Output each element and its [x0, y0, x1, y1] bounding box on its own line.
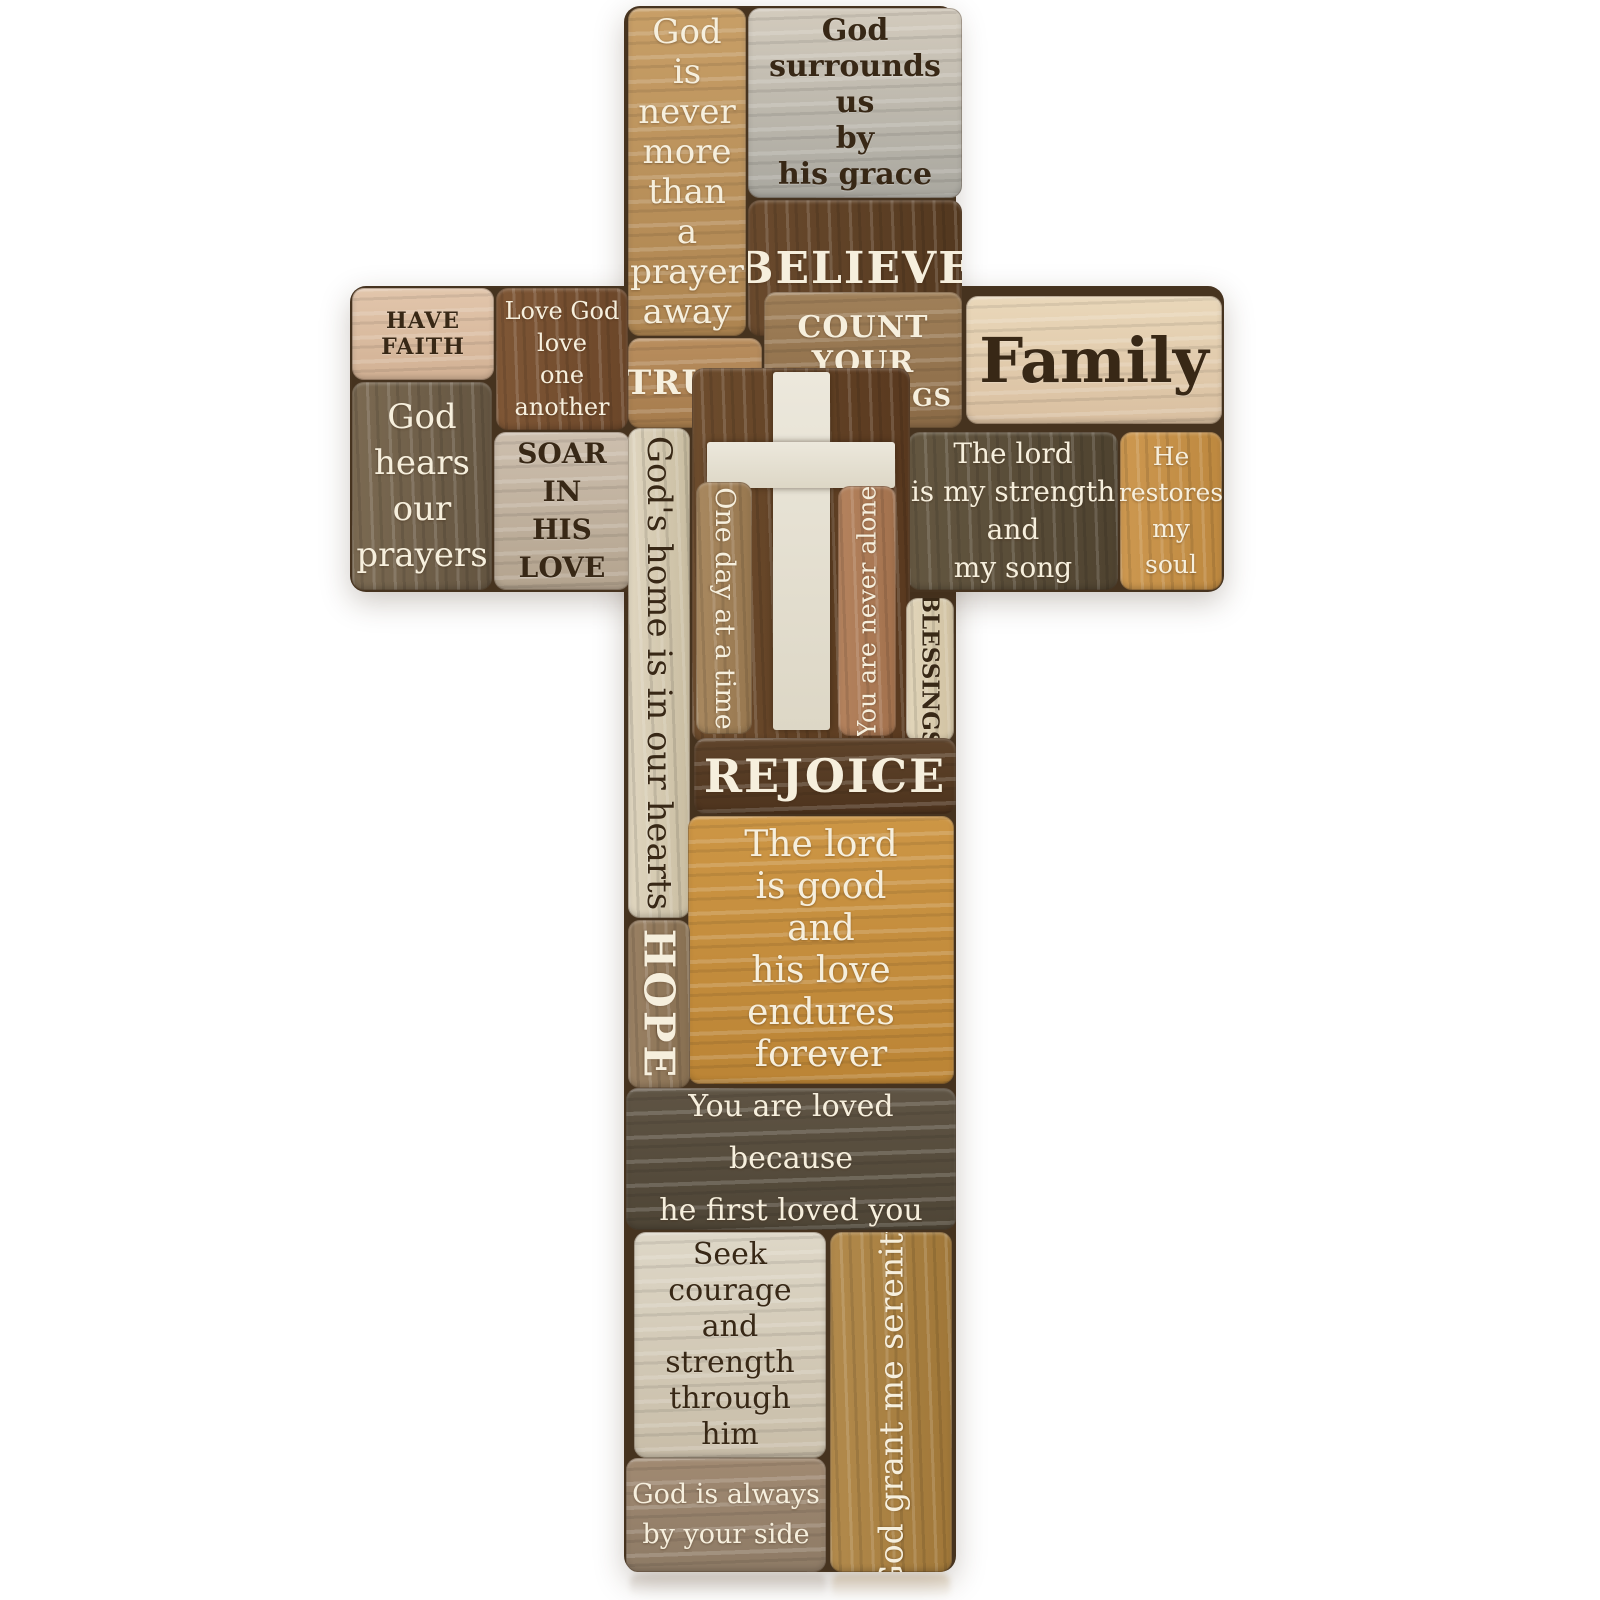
plank-never-alone: You are never alone	[838, 486, 896, 736]
plank-have-faith: HAVE FAITH	[352, 288, 494, 380]
plank-rejoice: REJOICE	[694, 738, 956, 814]
plank-god-surrounds: God surrounds us by his grace	[748, 8, 962, 198]
plank-soar: SOAR IN HIS LOVE	[494, 432, 630, 590]
plank-always-side-text: God is always by your side	[632, 1475, 820, 1555]
plank-love-god-text: Love God love one another	[496, 295, 628, 423]
plank-lord-strength: The lord is my strength and my song	[908, 432, 1118, 590]
plank-lord-good: The lord is good and his love endures fo…	[688, 816, 954, 1084]
cross-cutout-icon	[773, 372, 830, 730]
plank-hope-text: HOPE	[635, 928, 684, 1080]
product-photo-wooden-cross: God is never more than a prayer away God…	[0, 0, 1600, 1600]
plank-one-day: One day at a time	[696, 482, 752, 734]
plank-family-text: Family	[979, 324, 1209, 397]
plank-blessings-vertical: BLESSINGS	[906, 598, 954, 742]
plank-always-side: God is always by your side	[626, 1458, 826, 1572]
plank-blessings-vertical-text: BLESSINGS	[917, 598, 944, 742]
plank-lord-good-text: The lord is good and his love endures fo…	[744, 824, 897, 1076]
plank-he-restores: He restores my soul	[1120, 432, 1222, 590]
plank-god-hears: God hears our prayers	[352, 382, 492, 590]
floor-reflection	[832, 1574, 950, 1598]
plank-lord-strength-text: The lord is my strength and my song	[911, 435, 1115, 587]
plank-loved-because-text: You are loved because he first loved you	[626, 1088, 956, 1230]
plank-believe-text: BELIEVE	[748, 243, 962, 294]
plank-never-alone-text: You are never alone	[853, 486, 882, 736]
floor-reflection	[630, 1574, 826, 1596]
plank-god-surrounds-text: God surrounds us by his grace	[769, 13, 941, 193]
plank-loved-because: You are loved because he first loved you	[626, 1088, 956, 1230]
plank-god-hears-text: God hears our prayers	[356, 394, 487, 578]
plank-god-never-text: God is never more than a prayer away	[630, 12, 744, 332]
plank-family: Family	[966, 296, 1222, 424]
plank-seek-courage-text: Seek courage and strength through him	[665, 1237, 794, 1453]
plank-love-god: Love God love one another	[496, 288, 628, 430]
plank-soar-text: SOAR IN HIS LOVE	[517, 435, 607, 587]
plank-one-day-text: One day at a time	[709, 487, 740, 730]
plank-gods-home: God's home is in our hearts	[628, 428, 690, 918]
plank-seek-courage: Seek courage and strength through him	[634, 1232, 826, 1458]
plank-serenity: God grant me serenity	[830, 1232, 952, 1572]
plank-gods-home-text: God's home is in our hearts	[639, 436, 679, 910]
plank-rejoice-text: REJOICE	[704, 749, 946, 803]
plank-serenity-text: God grant me serenity	[872, 1232, 911, 1572]
plank-hope: HOPE	[628, 920, 690, 1088]
plank-have-faith-text: HAVE FAITH	[352, 308, 494, 360]
plank-god-never: God is never more than a prayer away	[628, 8, 746, 336]
plank-he-restores-text: He restores my soul	[1120, 439, 1222, 583]
